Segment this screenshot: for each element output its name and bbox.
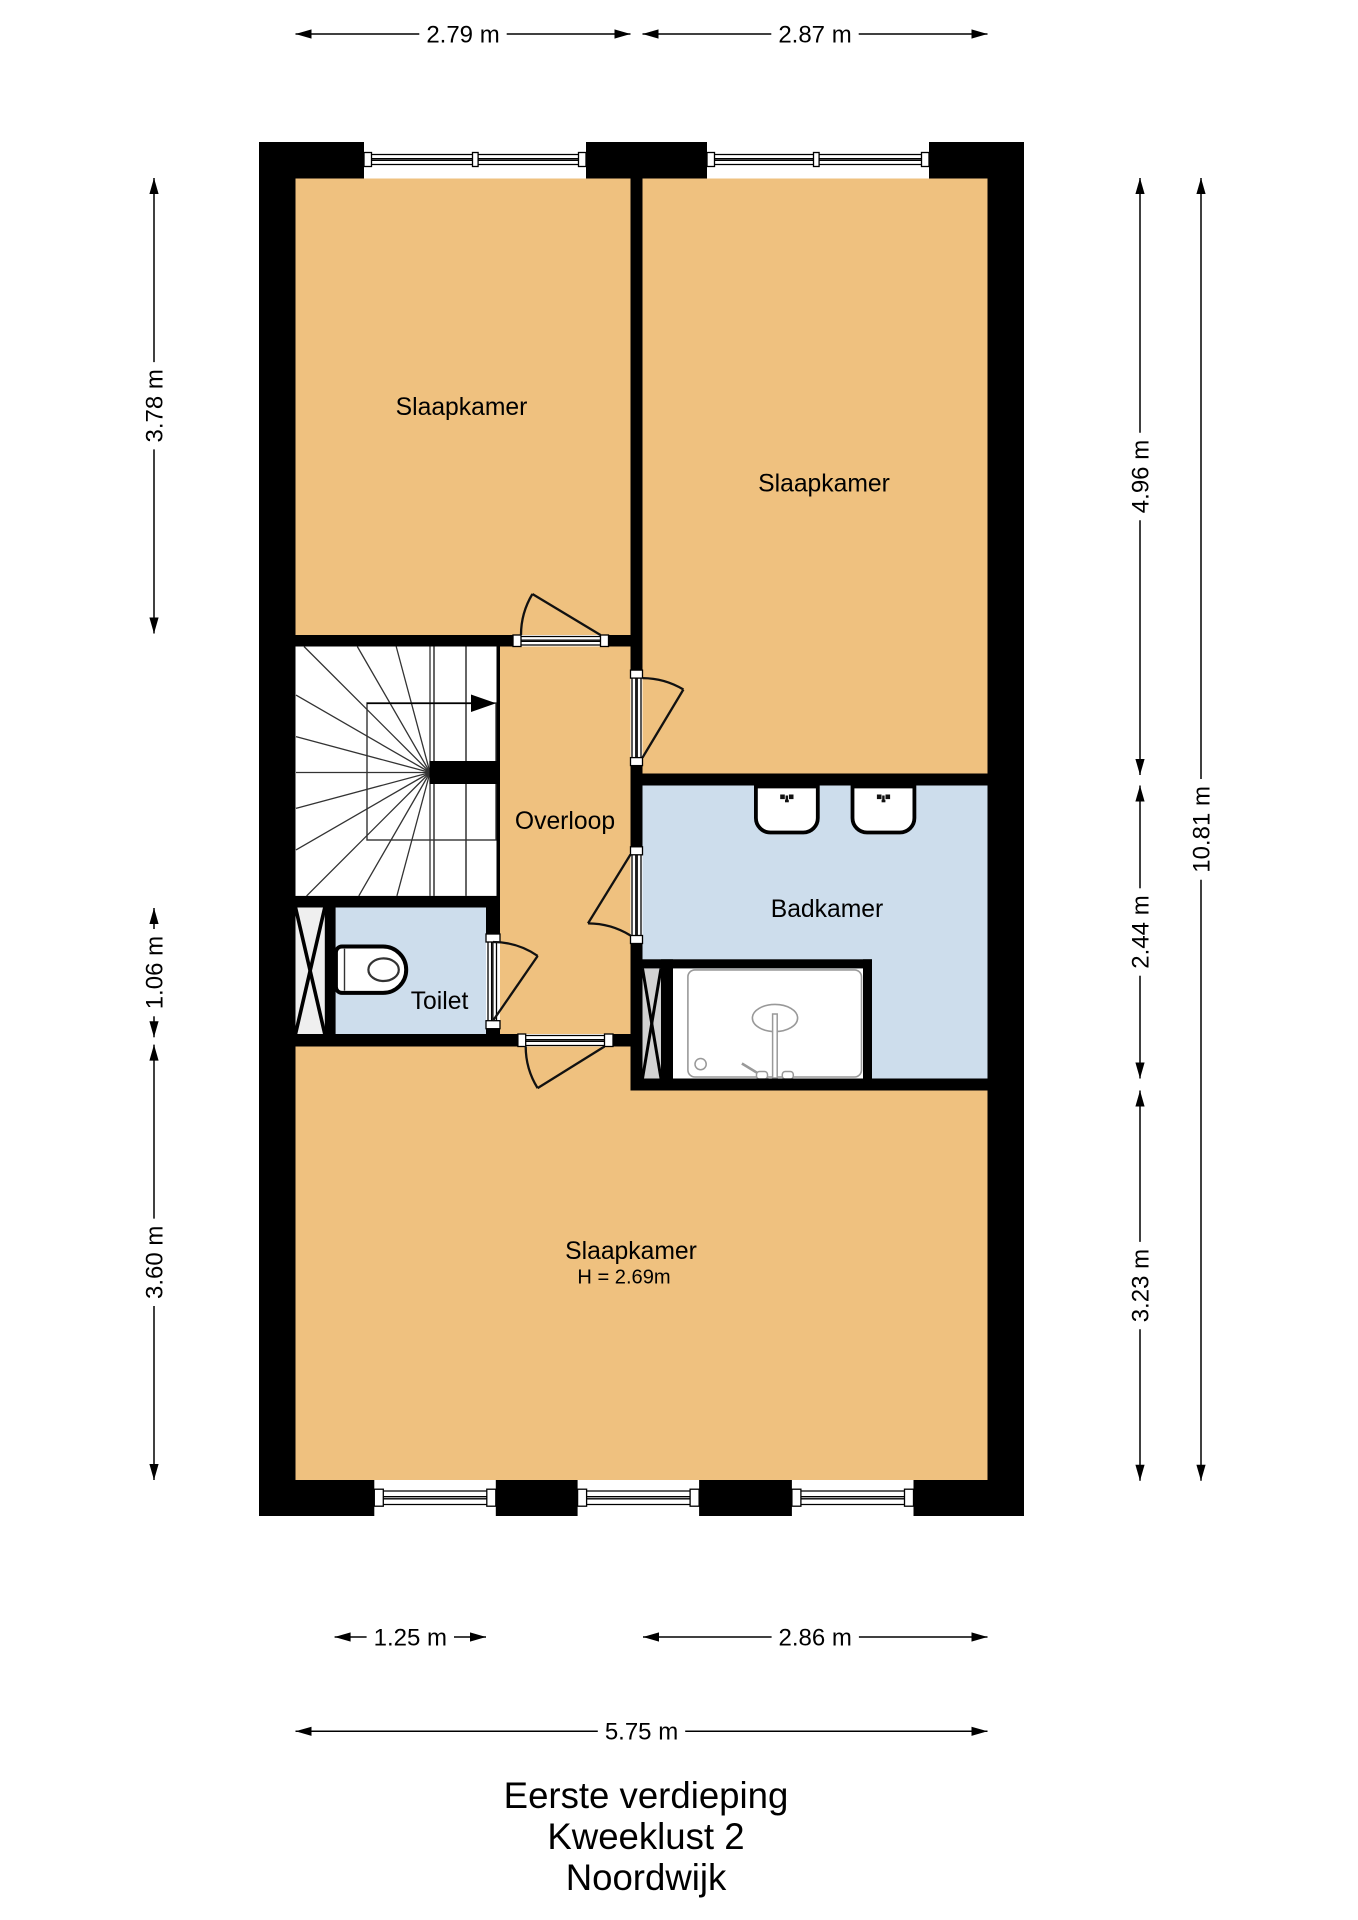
svg-text:2.86 m: 2.86 m bbox=[779, 1624, 852, 1651]
svg-text:3.78 m: 3.78 m bbox=[141, 369, 168, 442]
svg-text:1.25 m: 1.25 m bbox=[374, 1624, 447, 1651]
svg-text:Eerste verdieping: Eerste verdieping bbox=[504, 1775, 789, 1816]
svg-text:10.81 m: 10.81 m bbox=[1188, 786, 1215, 873]
svg-text:1.06 m: 1.06 m bbox=[141, 936, 168, 1009]
svg-text:2.79 m: 2.79 m bbox=[426, 21, 499, 48]
svg-text:Slaapkamer: Slaapkamer bbox=[396, 394, 528, 421]
svg-text:5.75 m: 5.75 m bbox=[605, 1719, 678, 1746]
svg-text:Slaapkamer: Slaapkamer bbox=[758, 471, 890, 498]
svg-text:4.96 m: 4.96 m bbox=[1127, 440, 1154, 513]
svg-text:2.44 m: 2.44 m bbox=[1127, 895, 1154, 968]
svg-text:Kweeklust 2: Kweeklust 2 bbox=[547, 1816, 744, 1857]
svg-text:Overloop: Overloop bbox=[515, 808, 615, 835]
svg-text:3.23 m: 3.23 m bbox=[1127, 1249, 1154, 1322]
svg-text:Toilet: Toilet bbox=[411, 988, 469, 1015]
svg-text:Noordwijk: Noordwijk bbox=[566, 1857, 727, 1898]
svg-text:2.87 m: 2.87 m bbox=[778, 21, 851, 48]
svg-text:Badkamer: Badkamer bbox=[771, 896, 884, 923]
svg-text:3.60 m: 3.60 m bbox=[141, 1226, 168, 1299]
svg-text:H = 2.69m: H = 2.69m bbox=[577, 1266, 670, 1288]
svg-text:Slaapkamer: Slaapkamer bbox=[565, 1238, 697, 1265]
